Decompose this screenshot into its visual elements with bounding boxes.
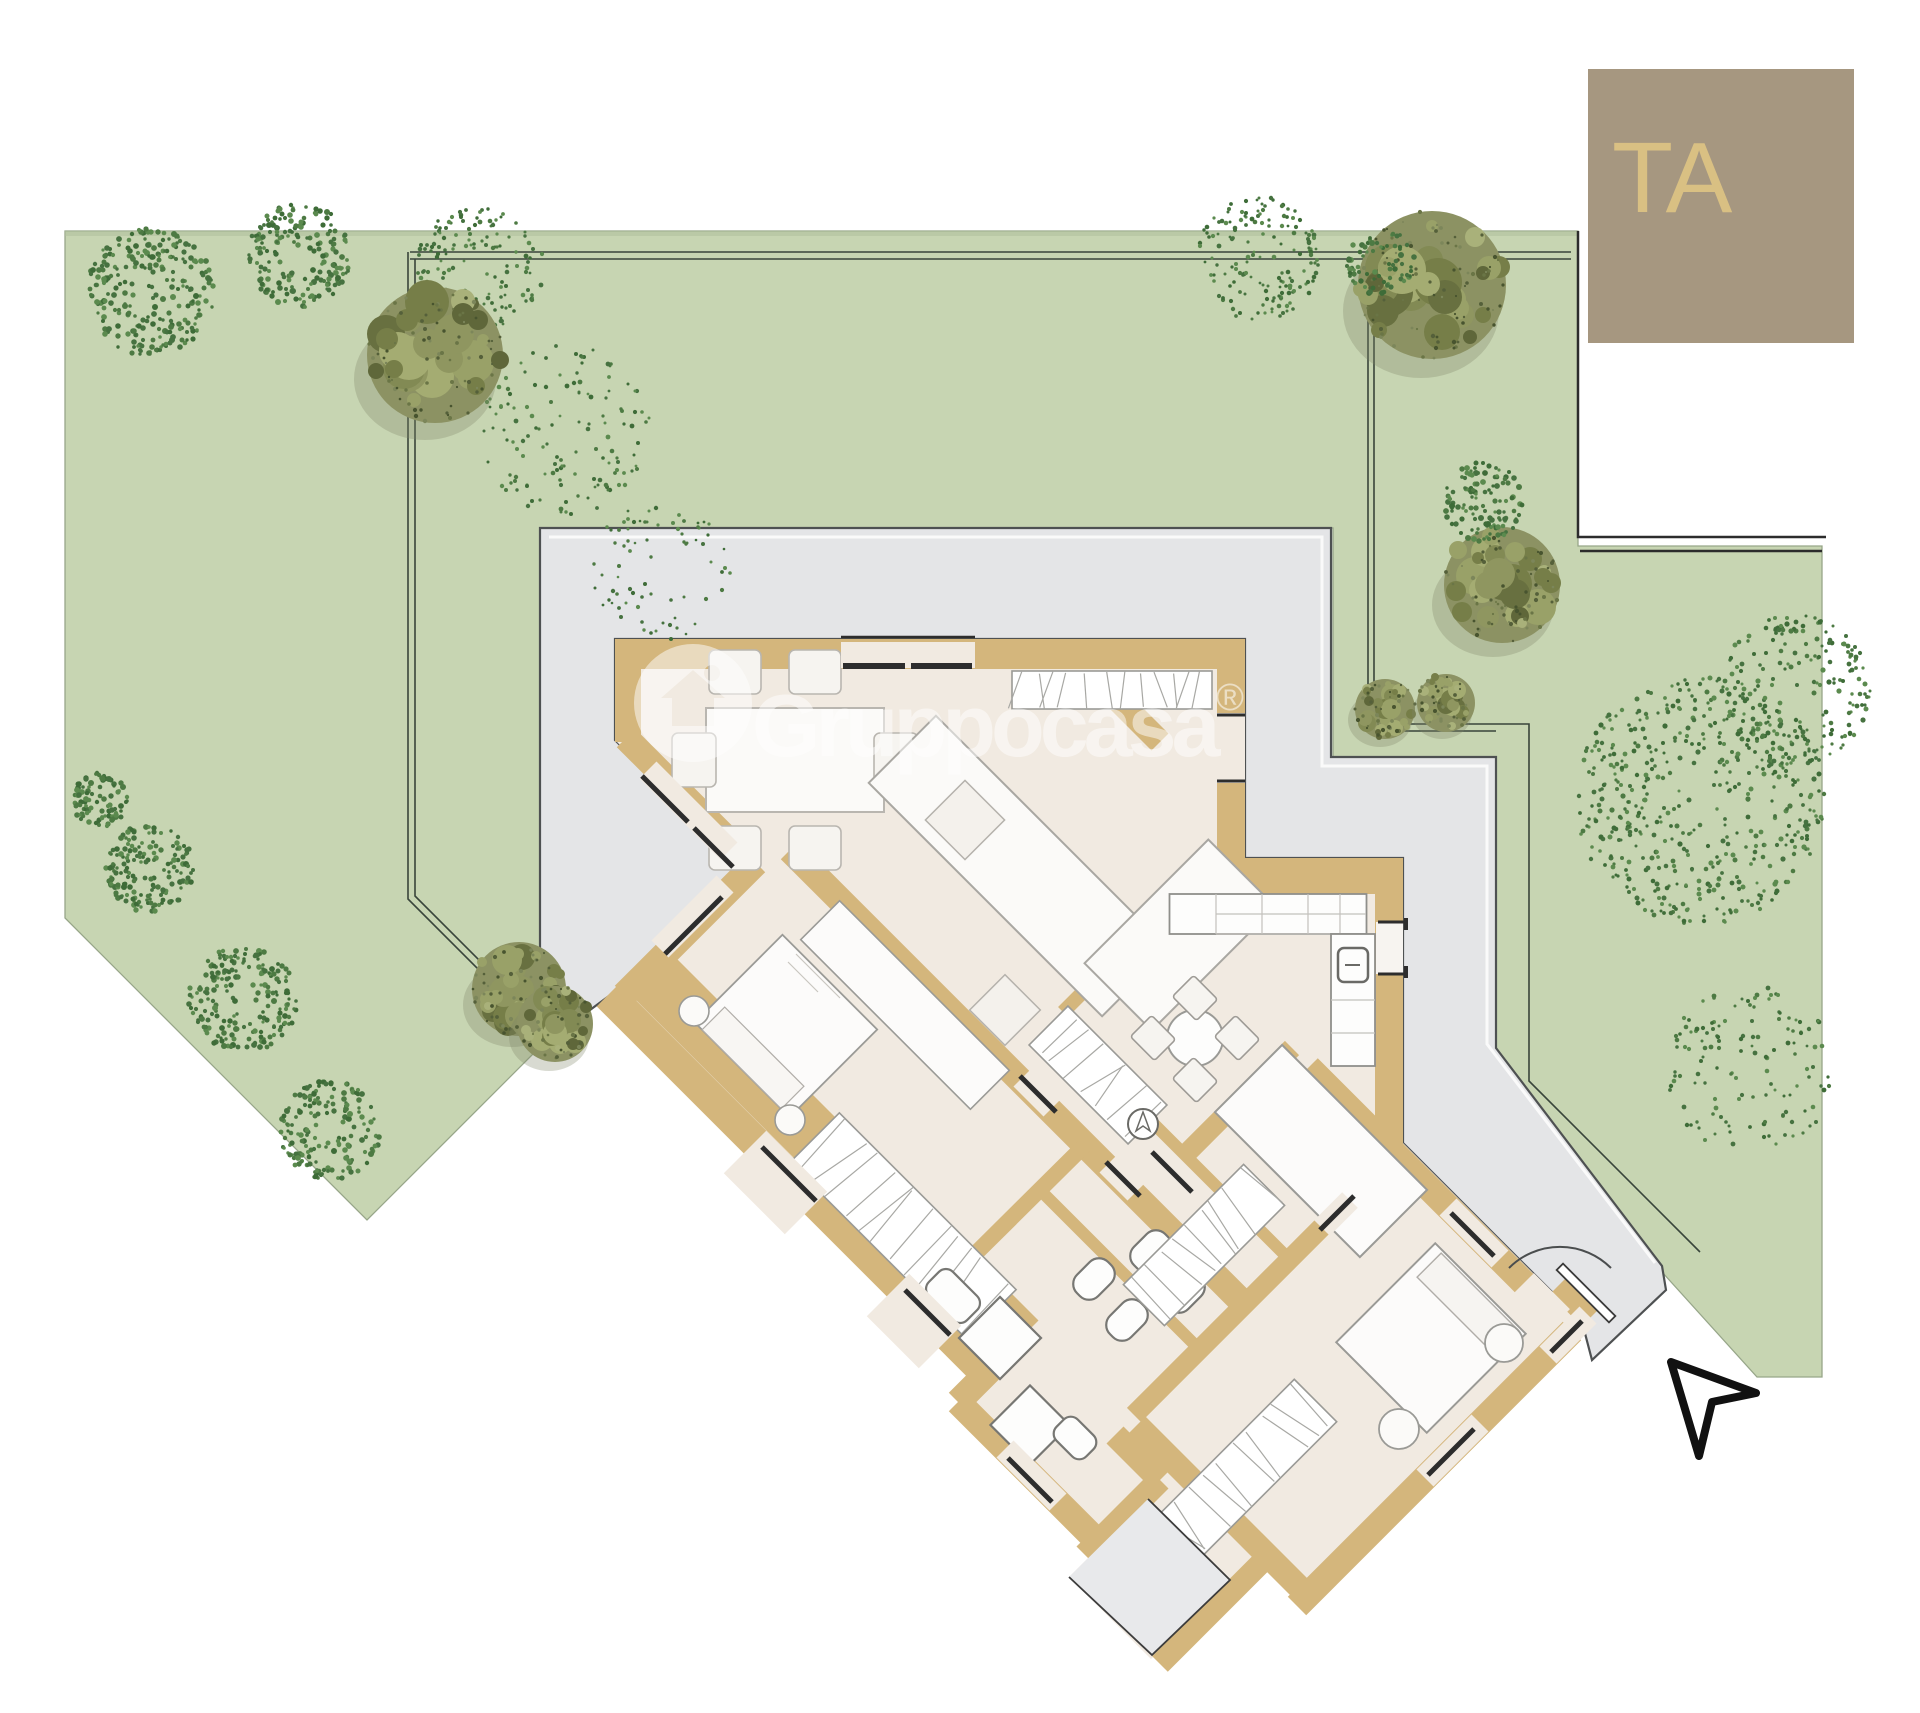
svg-text:Gruppocasa: Gruppocasa: [752, 676, 1222, 775]
svg-text:TA: TA: [1612, 122, 1733, 234]
svg-text:®: ®: [1216, 677, 1244, 719]
